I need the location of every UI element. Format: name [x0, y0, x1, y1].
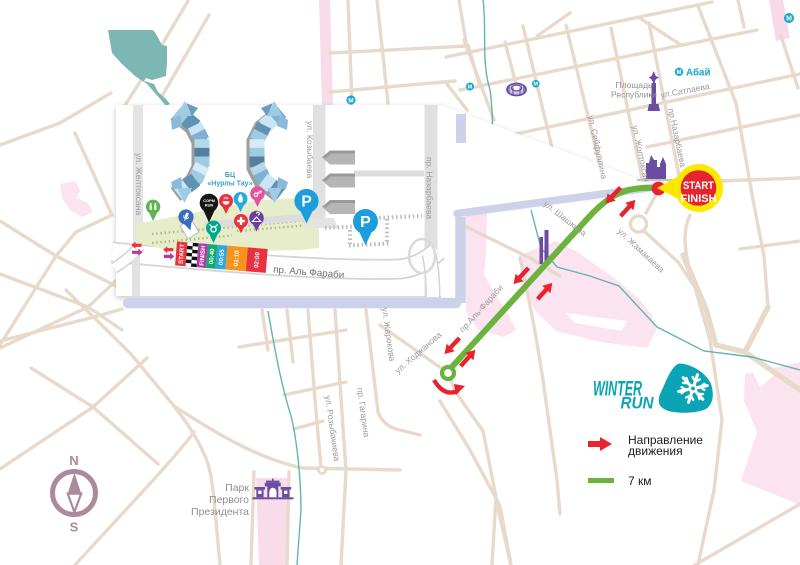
svg-text:«Нурлы Тау»: «Нурлы Тау»: [207, 181, 252, 188]
svg-text:00:40: 00:40: [208, 248, 216, 265]
svg-text:02:00: 02:00: [253, 251, 261, 268]
svg-text:00:55: 00:55: [218, 249, 226, 266]
svg-text:Республики: Республики: [611, 90, 657, 100]
svg-text:RUN: RUN: [205, 203, 214, 208]
svg-text:Президента: Президента: [191, 506, 249, 518]
svg-text:Парк: Парк: [225, 482, 249, 494]
svg-text:S: S: [70, 520, 79, 535]
svg-text:P: P: [360, 214, 371, 231]
svg-text:Первого: Первого: [209, 494, 249, 506]
svg-text:P: P: [301, 194, 311, 211]
svg-text:движения: движения: [628, 444, 683, 458]
svg-text:N: N: [69, 453, 78, 468]
svg-text:M: M: [534, 82, 539, 88]
svg-text:пр. Назарбаева: пр. Назарбаева: [425, 157, 435, 219]
svg-text:RUN: RUN: [621, 394, 655, 413]
svg-text:БЦ: БЦ: [225, 172, 236, 179]
svg-text:ул. Желтоксана: ул. Желтоксана: [134, 153, 144, 216]
svg-text:M: M: [786, 15, 792, 22]
svg-text:M: M: [468, 85, 473, 91]
svg-text:M: M: [348, 97, 353, 104]
svg-text:01:10: 01:10: [233, 250, 241, 267]
svg-text:ул. Козыбаева: ул. Козыбаева: [305, 121, 315, 178]
svg-text:Абай: Абай: [686, 68, 710, 79]
svg-text:Площадь: Площадь: [615, 80, 653, 90]
svg-text:7 км: 7 км: [628, 474, 652, 488]
svg-text:FINISH: FINISH: [681, 193, 717, 205]
svg-text:M: M: [677, 70, 682, 76]
svg-text:START: START: [683, 180, 714, 192]
